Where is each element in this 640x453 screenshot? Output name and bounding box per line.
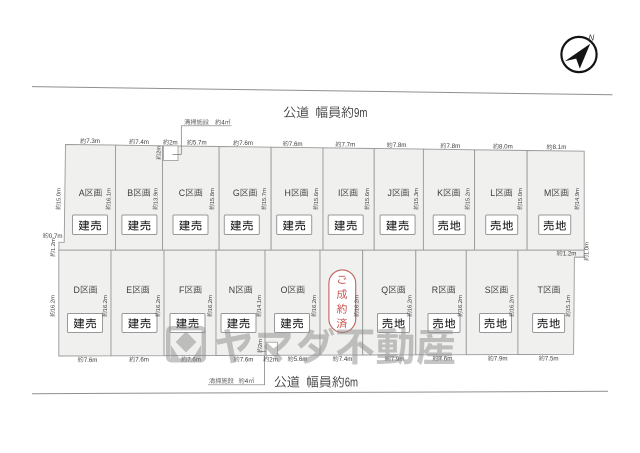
svg-text:15.7m: 15.7m (262, 188, 268, 204)
svg-text:16.2m: 16.2m (51, 295, 57, 311)
svg-text:7.6m: 7.6m (135, 357, 149, 364)
svg-text:1.2m: 1.2m (563, 250, 577, 257)
svg-text:7.4m: 7.4m (339, 356, 353, 363)
svg-text:7.7m: 7.7m (342, 142, 356, 149)
svg-text:15.1m: 15.1m (566, 295, 572, 311)
svg-text:G: G (233, 188, 240, 198)
svg-text:15.6m: 15.6m (314, 188, 320, 204)
svg-text:N: N (229, 285, 235, 295)
svg-text:8.1m: 8.1m (553, 144, 567, 151)
svg-text:L: L (490, 188, 495, 198)
svg-text:D: D (74, 285, 80, 295)
svg-text:O: O (281, 285, 288, 295)
svg-text:J: J (388, 188, 392, 198)
svg-text:15.6m: 15.6m (365, 188, 371, 204)
svg-text:16.2m: 16.2m (312, 295, 318, 311)
svg-text:M: M (544, 188, 551, 198)
svg-text:4: 4 (221, 119, 225, 126)
svg-text:9m: 9m (354, 105, 367, 120)
svg-text:2m: 2m (169, 139, 178, 146)
svg-text:N: N (589, 34, 595, 43)
svg-text:F: F (179, 285, 185, 295)
svg-text:16.2m: 16.2m (510, 295, 516, 311)
svg-text:5.7m: 5.7m (193, 140, 207, 147)
svg-text:1.0m: 1.0m (584, 242, 590, 255)
svg-text:15.3m: 15.3m (414, 188, 420, 204)
svg-text:2m: 2m (258, 339, 264, 347)
svg-text:1.2m: 1.2m (51, 238, 57, 251)
svg-text:Q: Q (381, 285, 388, 295)
svg-text:I: I (338, 188, 340, 198)
svg-text:16.2m: 16.2m (156, 295, 162, 311)
svg-text:15.0m: 15.0m (56, 188, 62, 204)
svg-text:S: S (485, 285, 491, 295)
svg-text:14.1m: 14.1m (257, 295, 263, 311)
svg-text:H: H (285, 188, 291, 198)
svg-text:A: A (79, 188, 85, 198)
svg-text:8.0m: 8.0m (499, 144, 513, 151)
svg-text:7.8m: 7.8m (447, 143, 461, 150)
svg-text:6m: 6m (345, 375, 358, 390)
svg-text:14.9m: 14.9m (575, 188, 581, 204)
svg-text:R: R (432, 285, 438, 295)
svg-text:7.4m: 7.4m (135, 139, 149, 146)
svg-text:13.9m: 13.9m (153, 188, 159, 204)
svg-text:16.2m: 16.2m (458, 295, 464, 311)
svg-text:7.5m: 7.5m (545, 355, 559, 362)
svg-text:C: C (179, 188, 186, 198)
svg-text:16.2m: 16.2m (103, 295, 109, 311)
svg-text:16.2m: 16.2m (208, 295, 214, 311)
svg-text:7.3m: 7.3m (86, 138, 100, 145)
svg-text:7.9m: 7.9m (494, 356, 508, 363)
svg-text:15.0m: 15.0m (518, 188, 524, 204)
svg-text:7.6m: 7.6m (84, 357, 98, 364)
svg-text:T: T (538, 285, 544, 295)
svg-text:15.2m: 15.2m (465, 188, 471, 204)
svg-text:K: K (437, 188, 443, 198)
svg-text:15.8m: 15.8m (210, 188, 216, 204)
svg-text:7.6m: 7.6m (289, 141, 303, 148)
svg-text:B: B (127, 188, 133, 198)
svg-text:7.8m: 7.8m (393, 142, 407, 149)
svg-text:16.2m: 16.2m (408, 295, 414, 311)
svg-text:E: E (126, 285, 132, 295)
svg-text:7.6m: 7.6m (239, 140, 253, 147)
svg-text:7.6m: 7.6m (240, 356, 254, 363)
svg-text:16.1m: 16.1m (106, 188, 112, 204)
svg-text:16.2m: 16.2m (355, 295, 361, 311)
svg-text:2m: 2m (157, 146, 163, 154)
svg-text:4: 4 (245, 378, 249, 385)
